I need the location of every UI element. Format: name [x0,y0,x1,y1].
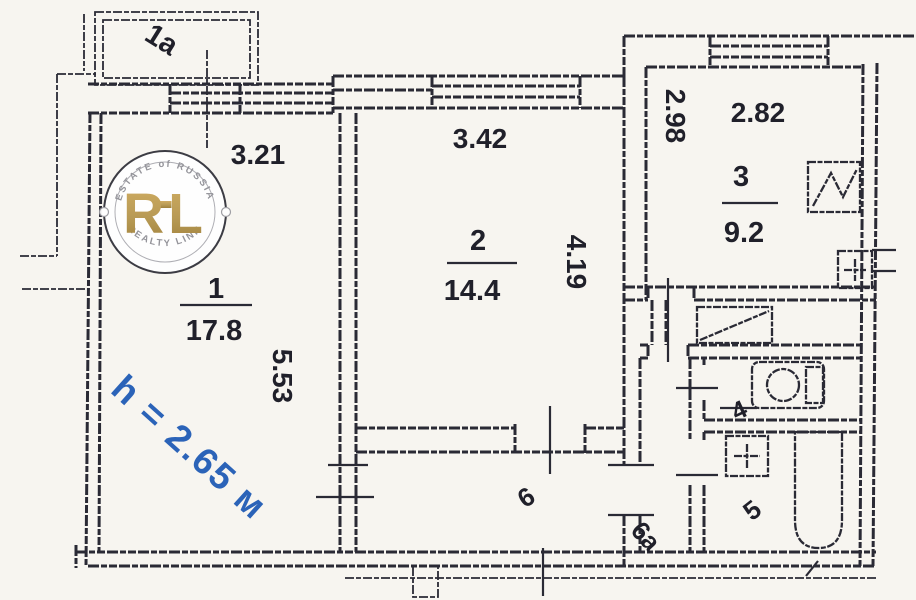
room2-dim-side-label: 4.19 [561,235,592,290]
floor-plan: 1a 3.21 1 17.8 5.53 h = 2.65 м 3.42 2 14… [0,0,916,600]
room2-dim-top-label: 3.42 [453,123,508,154]
room2-area-label: 14.4 [444,275,500,307]
room3-dim-top-label: 2.82 [731,97,786,128]
room1-number-label: 1 [208,273,224,305]
watermark-right-dot [222,208,231,217]
watermark-left-dot [100,208,109,217]
room1-dim-top-label: 3.21 [231,139,286,170]
room3-number-label: 3 [733,161,749,193]
room1-dim-side-label: 5.53 [267,349,298,404]
room1-area-label: 17.8 [186,315,242,347]
room3-dim-side-label: 2.98 [660,89,691,144]
room2-number-label: 2 [470,225,486,257]
watermark-brand-text: RL [123,182,207,246]
room3-area-label: 9.2 [724,217,764,249]
